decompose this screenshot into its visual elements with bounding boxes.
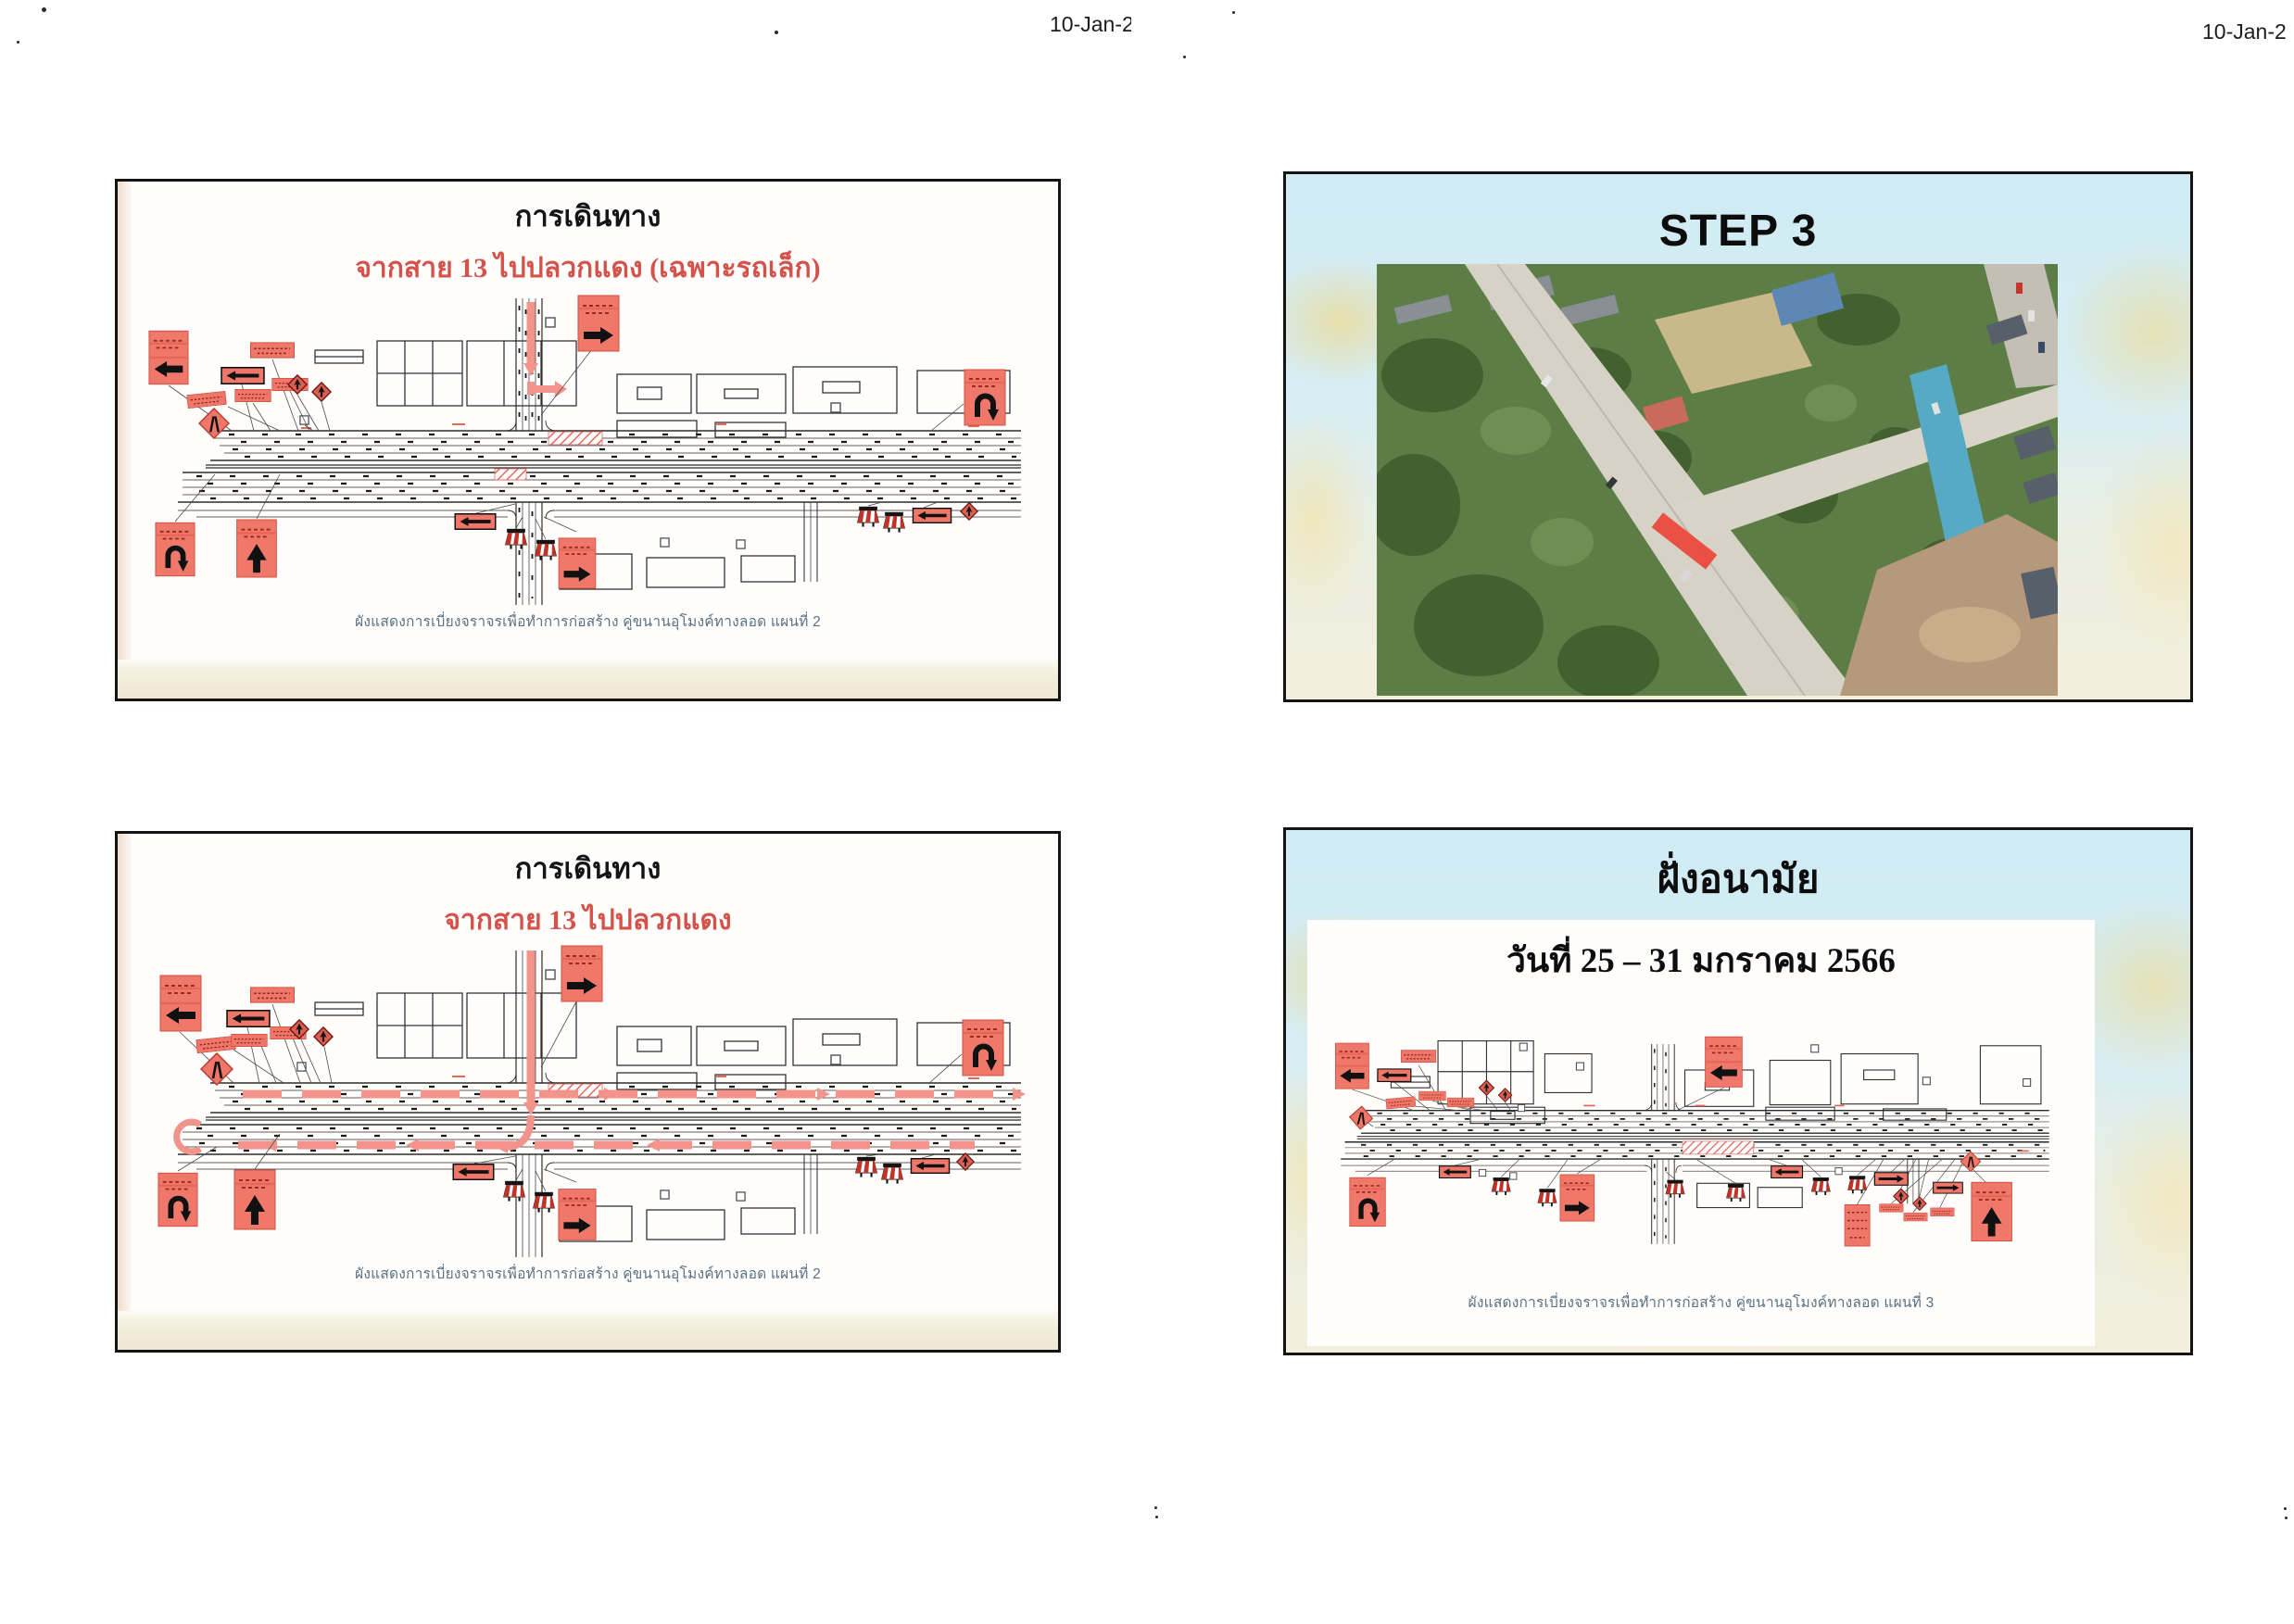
scan-bottom-strip — [118, 660, 1058, 699]
slide-title: ฝั่งอนามัย — [1286, 849, 2190, 910]
scan-speck — [1232, 11, 1235, 14]
barricade-icon — [856, 1157, 877, 1177]
scan-speck — [17, 41, 19, 44]
sign-detour-label — [250, 343, 294, 358]
sign-warning-diamond — [1894, 1189, 1909, 1203]
sign-small-label — [232, 1034, 268, 1046]
station-marks — [301, 424, 979, 428]
sign-lane-merge-diamond — [201, 1053, 233, 1085]
map-label-box — [1811, 1045, 1819, 1052]
sign-uturn — [1350, 1177, 1385, 1226]
barricade-icon — [882, 1164, 903, 1184]
sign-arrow-up — [234, 1170, 275, 1229]
barricade-icon — [1727, 1184, 1746, 1202]
diversion-arrows — [523, 302, 567, 397]
map-label-box — [661, 538, 669, 547]
map-label-box — [1922, 1077, 1930, 1085]
sign-arrow-right — [559, 538, 596, 588]
barricade-icon — [884, 512, 905, 533]
cross-street — [508, 950, 817, 1257]
barricade-icon — [504, 1181, 525, 1202]
sign-lane-merge-diamond — [1960, 1152, 1980, 1171]
sign-warning-diamond — [957, 1153, 974, 1170]
sign-warning-diamond — [288, 375, 307, 394]
sign-arrow-up — [237, 520, 277, 577]
sign-small-label — [1879, 1204, 1903, 1213]
sign-detour-label — [250, 988, 294, 1002]
map-label-box — [1479, 1169, 1485, 1176]
map-label-box — [1835, 1168, 1842, 1175]
sign-warning-diamond — [314, 1027, 333, 1046]
sign-small-label — [1419, 1091, 1446, 1101]
lane-arrows — [196, 434, 1016, 498]
barricade-icon — [534, 1192, 555, 1213]
sign-uturn — [156, 522, 195, 575]
sign-small-arrow-left — [911, 1159, 949, 1174]
slide-travel-small-cars: การเดินทาง จากสาย 13 ไปปลวกแดง (เฉพาะรถเ… — [115, 179, 1061, 701]
sign-small-label — [235, 389, 271, 401]
content-panel: วันที่ 25 – 31 มกราคม 2566 — [1307, 920, 2095, 1346]
sign-uturn — [964, 370, 1005, 425]
slide-title: การเดินทาง — [118, 193, 1058, 239]
cross-street-arrows — [1655, 1049, 1666, 1238]
map-label-box — [546, 318, 555, 327]
cross-street — [508, 298, 817, 605]
sign-arrow-right — [1560, 1175, 1594, 1221]
traffic-diversion-diagram — [141, 285, 1030, 610]
sign-small-label — [1386, 1097, 1416, 1109]
scan-speck — [1183, 56, 1186, 58]
sign-uturn — [963, 1020, 1003, 1076]
sign-arrow-left — [149, 331, 188, 384]
map-label-box — [661, 1190, 669, 1199]
sign-small-arrow-left — [221, 368, 264, 384]
sign-small-arrow-right — [1934, 1182, 1963, 1193]
sign-arrow-up — [1972, 1182, 2011, 1240]
sign-small-arrow-left — [1440, 1166, 1471, 1178]
map-label-box — [1576, 1063, 1583, 1070]
traffic-diversion-diagram — [1317, 1008, 2086, 1286]
sign-arrow-right — [578, 296, 619, 351]
scan-bottom-strip — [118, 1311, 1058, 1350]
barricade-icon — [1492, 1177, 1510, 1195]
slide-subtitle: จากสาย 13 ไปปลวกแดง (เฉพาะรถเล็ก) — [118, 246, 1058, 290]
sign-small-arrow-right — [1874, 1173, 1908, 1186]
sign-arrow-left — [160, 976, 201, 1031]
slide-title: การเดินทาง — [118, 845, 1058, 891]
scan-speck — [1154, 1506, 1157, 1509]
slide-travel: การเดินทาง จากสาย 13 ไปปลวกแดง — [115, 831, 1061, 1353]
sign-detour-label — [1401, 1051, 1436, 1063]
sign-warning-diamond — [961, 503, 977, 520]
photo-dirt-patch — [1919, 607, 2021, 662]
sign-warning-diamond — [1913, 1197, 1926, 1210]
map-label-box — [737, 1192, 745, 1201]
sign-multiline-label — [1845, 1204, 1870, 1246]
scan-speck — [1155, 1516, 1158, 1518]
sign-small-arrow-left — [453, 1164, 494, 1180]
sign-uturn — [158, 1173, 197, 1226]
diagram-caption: ผังแสดงการเบี่ยงจราจรเพื่อทำการก่อสร้าง … — [1307, 1290, 2095, 1314]
sign-small-label — [1904, 1213, 1928, 1221]
scanned-document-page: 10-Jan-2 10-Jan-2 การเดินทาง จากสาย 13 ไ… — [0, 0, 2294, 1624]
barricade-icon — [1811, 1177, 1830, 1195]
sign-arrow-right — [561, 946, 602, 1001]
map-label-box — [1510, 1173, 1517, 1179]
construction-zone-hatch — [1683, 1141, 1754, 1154]
header-date-right: 10-Jan-2 — [2202, 19, 2294, 51]
construction-zone-hatch — [495, 469, 526, 480]
sign-lane-merge-diamond — [199, 409, 229, 438]
sign-small-label — [1447, 1098, 1474, 1107]
sign-small-arrow-left — [1771, 1166, 1803, 1178]
diagram-caption: ผังแสดงการเบี่ยงจราจรเพื่อทำการก่อสร้าง … — [118, 610, 1058, 633]
map-label-box — [546, 970, 555, 979]
scan-speck — [2285, 1517, 2288, 1519]
sign-warning-diamond — [312, 383, 331, 401]
diversion-route — [177, 1094, 1016, 1152]
map-label-box — [737, 540, 745, 548]
diagram-caption: ผังแสดงการเบี่ยงจราจรเพื่อทำการก่อสร้าง … — [118, 1262, 1058, 1285]
sign-small-label — [196, 1036, 236, 1052]
scan-speck — [42, 7, 46, 12]
scan-speck — [775, 31, 778, 34]
sign-small-arrow-left — [227, 1011, 270, 1026]
map-label-box — [1519, 1043, 1527, 1051]
barricade-icon — [858, 507, 879, 527]
barricade-icon — [536, 540, 557, 560]
map-label-box — [831, 1055, 840, 1064]
scan-speck — [2284, 1507, 2287, 1510]
map-label-box — [2023, 1079, 2031, 1087]
slide-title: STEP 3 — [1286, 206, 2190, 257]
main-road — [1341, 1111, 2048, 1172]
sign-small-arrow-left — [913, 509, 951, 523]
construction-zone-hatch — [548, 432, 602, 445]
sign-warning-diamond — [1498, 1089, 1511, 1102]
sign-arrow-right — [559, 1190, 596, 1240]
map-label-box — [831, 403, 840, 412]
header-date-center: 10-Jan-2 — [1050, 12, 1131, 44]
sign-small-arrow-left — [1378, 1069, 1411, 1082]
date-range: วันที่ 25 – 31 มกราคม 2566 — [1307, 933, 2095, 988]
map-label-box — [1518, 1104, 1524, 1111]
traffic-diversion-diagram — [141, 938, 1030, 1262]
sign-small-label — [187, 391, 227, 408]
sign-arrow-left — [1335, 1043, 1368, 1089]
sign-warning-diamond — [1479, 1080, 1494, 1095]
sign-small-arrow-left — [455, 514, 496, 530]
aerial-photo — [1377, 264, 2058, 696]
slide-subtitle: จากสาย 13 ไปปลวกแดง — [118, 899, 1058, 942]
sign-arrow-left — [1706, 1037, 1743, 1087]
sign-small-label — [1930, 1208, 1954, 1216]
sign-lane-merge-diamond — [1349, 1105, 1373, 1129]
barricade-icon — [1538, 1189, 1557, 1206]
slide-step3: STEP 3 — [1283, 171, 2193, 702]
barricade-icon — [1848, 1176, 1867, 1193]
slide-anamai: ฝั่งอนามัย วันที่ 25 – 31 มกราคม 2566 — [1283, 827, 2193, 1355]
